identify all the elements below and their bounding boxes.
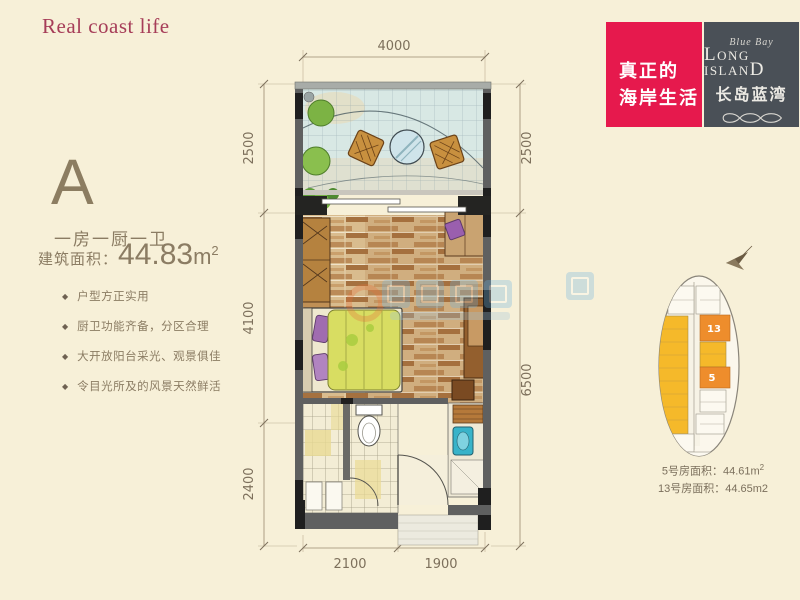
area-value: 44.83 [118,238,193,272]
kitchen [448,403,488,497]
slogan-line-2: 海岸生活 [619,85,702,112]
keyplan-unit-5-label: 5 [709,373,716,384]
keyplan-caption: 5号房面积：44.61m2 13号房面积：44.65m2 [628,459,798,498]
brand-logo-box: Blue Bay LONG ISLAND 长岛蓝湾 [704,22,799,127]
entry-porch [398,515,478,545]
desk [444,212,488,256]
logo-english-name: LONG ISLAND [704,48,799,78]
keyplan-units-left [658,316,688,434]
diamond-bullet-icon: ◆ [62,352,68,361]
balcony-table [390,130,424,164]
logo-initial-l: L [704,44,717,65]
feature-text: 大开放阳台采光、观景俱佳 [77,348,221,364]
dim-left-mid: 4100 [242,301,257,334]
feature-text: 户型方正实用 [77,288,149,304]
diamond-bullet-icon: ◆ [62,322,68,331]
dim-left-top: 2500 [242,131,257,164]
dim-right-main: 6500 [520,363,535,396]
slogan-line-1: 真正的 [619,58,702,85]
unit-area: 建筑面积：44.83m2 [38,238,219,272]
logo-chinese-name: 长岛蓝湾 [715,81,787,105]
dim-right-top: 2500 [520,131,535,164]
logo-swirl-ornament [716,109,788,127]
bath-mat [306,482,322,510]
bathroom [303,403,398,513]
area-label: 建筑面积： [38,248,118,269]
bedroom [300,212,488,403]
page-tagline: Real coast life [42,14,170,39]
wardrobe [300,218,330,302]
bathroom-partition [343,403,350,480]
stool [452,380,474,400]
dim-bottom-left: 2100 [333,557,366,572]
diamond-bullet-icon: ◆ [62,382,68,391]
caption-unit13: 13号房面积：44.65m2 [628,481,798,498]
toilet [356,405,382,446]
logo-initial-d: D [750,59,765,80]
diamond-bullet-icon: ◆ [62,292,68,301]
sliding-door [322,199,400,204]
building-keyplan: 13 5 [646,240,754,465]
compass-icon [726,246,752,270]
area-unit-sup: 2 [211,243,218,258]
feature-text: 令目光所及的风景天然鲜活 [77,378,221,394]
feature-text: 厨卫功能齐备，分区合理 [77,318,209,334]
area-unit: m [193,244,211,270]
bed [302,308,402,392]
bath-mat [326,482,342,510]
dim-bottom-right: 1900 [424,557,457,572]
keyplan-unit-13-label: 13 [707,324,721,335]
caption-unit5: 5号房面积：44.61m2 [628,459,798,481]
sliding-door [388,207,466,212]
dim-top: 4000 [377,39,410,54]
unit-type-letter: A [51,150,94,214]
brand-slogan-box: 真正的 海岸生活 [606,22,702,127]
dim-left-bottom: 2400 [242,467,257,500]
floor-plan: 4000 2500 4100 2400 2500 6500 2100 1900 [238,30,550,596]
logo-script-text: Blue Bay [729,37,773,48]
